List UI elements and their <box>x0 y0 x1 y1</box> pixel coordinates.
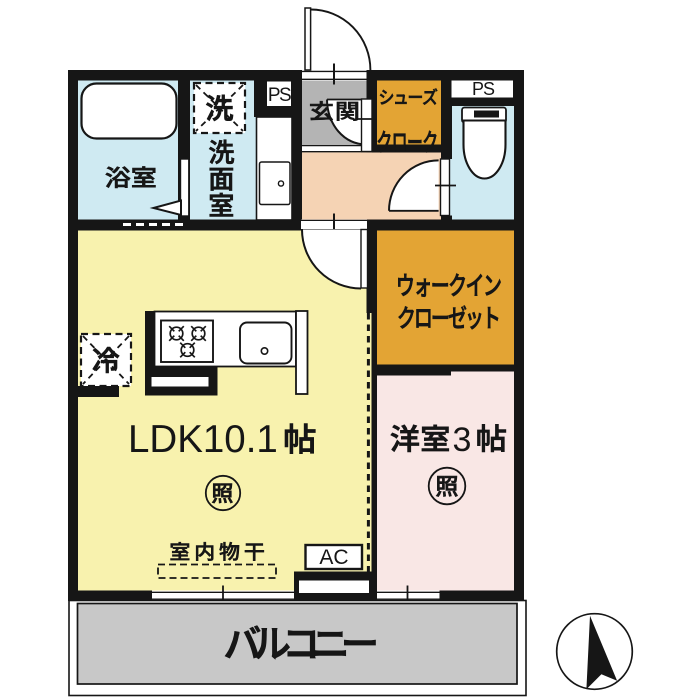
svg-text:LDK10.1: LDK10.1 <box>128 418 278 461</box>
svg-text:AC: AC <box>319 546 348 569</box>
svg-text:PS: PS <box>268 85 291 106</box>
svg-text:PS: PS <box>472 79 495 99</box>
svg-text:3: 3 <box>453 421 472 459</box>
